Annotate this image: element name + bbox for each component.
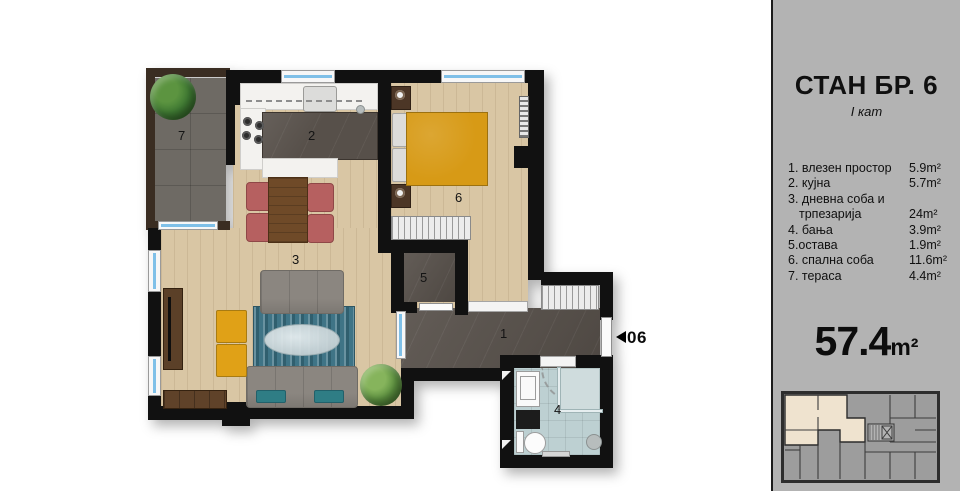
sideboard	[163, 390, 227, 409]
plant-icon	[150, 74, 196, 120]
legend-row: 3. дневна соба и	[788, 192, 955, 207]
towel-bar	[542, 451, 570, 457]
room-label-bedroom: 6	[455, 190, 462, 205]
legend-room-area	[909, 192, 955, 207]
wall	[528, 83, 544, 280]
window-glass	[399, 314, 402, 356]
wall	[600, 357, 613, 468]
sofa-pillow	[256, 390, 286, 403]
floor-subtitle: I кат	[773, 104, 960, 119]
dining-chair	[307, 183, 334, 212]
tv-icon	[168, 297, 171, 361]
lamp-icon	[395, 90, 405, 100]
wall	[500, 355, 540, 368]
legend-room-area: 3.9m²	[909, 223, 955, 238]
legend-room-name: 1. влезен простор	[788, 161, 909, 176]
legend-row: трпезарија 24m²	[788, 207, 955, 222]
wall	[455, 240, 468, 315]
legend-room-name: 2. кујна	[788, 176, 909, 191]
dining-chair	[307, 214, 334, 243]
legend-room-name: 7. тераса	[788, 269, 909, 284]
sofa-two-seat	[260, 270, 344, 314]
living-window-1	[148, 250, 161, 292]
legend-room-name: трпезарија	[788, 207, 909, 222]
legend-row: 7. тераса 4.4m²	[788, 269, 955, 284]
window-glass	[444, 75, 522, 78]
total-area-unit: m²	[890, 334, 918, 360]
legend-room-area: 11.6m²	[909, 253, 955, 268]
wall	[226, 70, 235, 165]
nightstand	[391, 184, 411, 208]
coffee-table	[264, 324, 340, 356]
burner-icon	[243, 117, 252, 126]
window-glass	[153, 253, 156, 289]
vent-icon	[502, 440, 511, 449]
floorplan-page: 7 2 3 4 5 6 1 06 СТАН БР. 6 I кат 1. вле…	[0, 0, 960, 491]
legend-room-name: 6. спална соба	[788, 253, 909, 268]
entry-arrow-icon	[616, 331, 626, 343]
total-area-value: 57.4	[815, 318, 891, 364]
ottoman	[216, 344, 247, 377]
lamp-icon	[395, 188, 405, 198]
legend-row: 6. спална соба 11.6m²	[788, 253, 955, 268]
apartment-title: СТАН БР. 6	[773, 70, 960, 101]
storage-floor	[404, 253, 455, 302]
info-panel: СТАН БР. 6 I кат 1. влезен простор 5.9m²…	[771, 0, 960, 491]
wall	[401, 368, 514, 381]
living-hall-glass-door	[396, 311, 406, 359]
shower-glass	[558, 410, 602, 412]
bathroom-cabinet	[516, 410, 540, 429]
kitchen-window	[281, 70, 335, 83]
wall	[378, 70, 391, 253]
kitchen-sink-icon	[303, 86, 337, 112]
legend-row: 4. бања 3.9m²	[788, 223, 955, 238]
window-glass	[284, 75, 332, 78]
living-window-2	[148, 356, 161, 396]
burner-icon	[254, 135, 263, 144]
entry-door	[601, 317, 612, 357]
counter-dashed-line	[246, 100, 362, 102]
room-label-bath: 4	[554, 402, 561, 417]
room-label-terrace: 7	[178, 128, 185, 143]
legend-room-name: 5.остава	[788, 238, 909, 253]
room-label-entry: 1	[500, 326, 507, 341]
room-label-living: 3	[292, 252, 299, 267]
legend-room-area: 5.9m²	[909, 161, 955, 176]
room-legend: 1. влезен простор 5.9m² 2. кујна 5.7m² 3…	[788, 161, 955, 284]
double-bed	[406, 112, 488, 186]
shower-tray	[560, 368, 600, 410]
bedroom-door-sill	[468, 301, 528, 312]
dining-table	[268, 177, 308, 243]
bedroom-window	[441, 70, 525, 83]
wall	[514, 146, 528, 168]
room-label-kitchen: 2	[308, 128, 315, 143]
sofa-pillow	[314, 390, 344, 403]
kitchen-island	[262, 112, 378, 160]
legend-row: 5.остава 1.9m²	[788, 238, 955, 253]
legend-room-area: 4.4m²	[909, 269, 955, 284]
terrace-edge	[146, 68, 230, 77]
ottoman	[216, 310, 247, 343]
room-label-storage: 5	[420, 270, 427, 285]
plant-icon	[360, 364, 402, 406]
wall	[600, 272, 613, 320]
bathroom-door-sill	[540, 356, 576, 367]
legend-row: 2. кујна 5.7m²	[788, 176, 955, 191]
bedroom-wardrobe	[391, 216, 471, 240]
faucet-icon	[356, 105, 365, 114]
nightstand	[391, 86, 411, 110]
shower-head-icon	[586, 434, 602, 450]
entry-door-number: 06	[627, 328, 647, 348]
legend-room-area: 24m²	[909, 207, 955, 222]
terrace-door	[158, 221, 218, 230]
radiator-icon	[519, 96, 529, 138]
total-area: 57.4m²	[773, 318, 960, 365]
window-glass	[153, 359, 156, 393]
tv-console	[163, 288, 183, 370]
burner-icon	[242, 131, 251, 140]
burner-icon	[255, 121, 264, 130]
window-glass	[161, 224, 215, 227]
mini-floorplan	[780, 390, 941, 485]
legend-room-area: 1.9m²	[909, 238, 955, 253]
legend-room-area: 5.7m²	[909, 176, 955, 191]
vent-icon	[502, 371, 511, 380]
legend-room-name: 3. дневна соба и	[788, 192, 909, 207]
hallway-wardrobe	[541, 285, 599, 310]
legend-row: 1. влезен простор 5.9m²	[788, 161, 955, 176]
legend-room-name: 4. бања	[788, 223, 909, 238]
toilet-tank	[516, 431, 524, 453]
kitchen-counter	[262, 158, 338, 178]
sink-basin	[520, 376, 536, 400]
storage-door	[419, 303, 453, 311]
